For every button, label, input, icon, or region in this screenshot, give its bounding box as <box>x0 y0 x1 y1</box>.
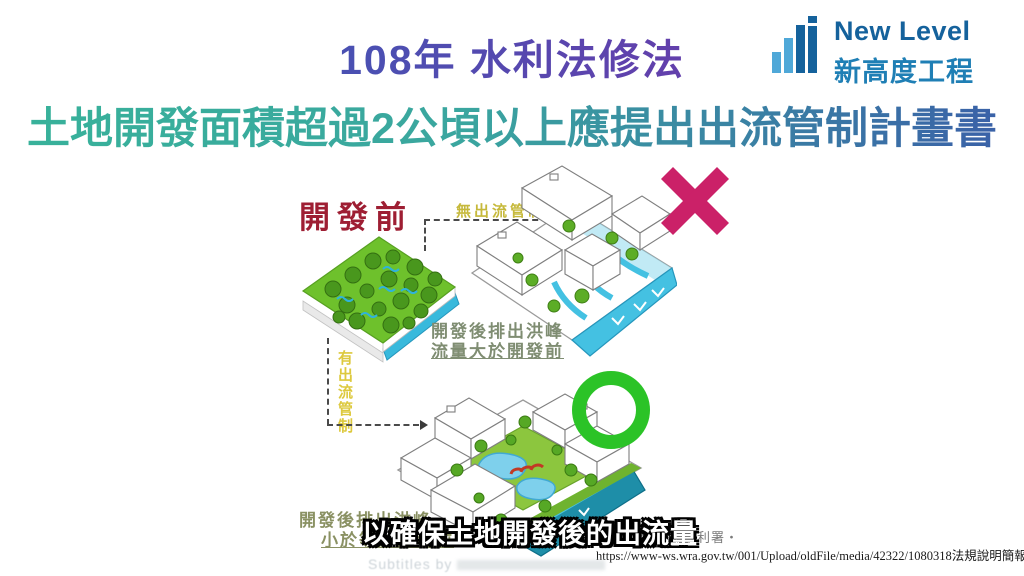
with-control-dashed-line <box>327 338 329 425</box>
flood-result-text: 開發後排出洪峰 流量大於開發前 <box>431 322 564 362</box>
circle-mark <box>568 366 654 452</box>
slide: 108年 水利法修法 New Level 新高度工程 土地開發面積超過2公頃以上… <box>0 0 1024 576</box>
watermark-illegible-tail <box>457 560 605 570</box>
headline: 土地開發面積超過2公頃以上應提出出流管制計畫書 <box>0 94 1024 156</box>
flood-result-line2: 流量大於開發前 <box>431 342 564 362</box>
company-logo: New Level 新高度工程 <box>770 12 996 86</box>
logo-name-en: New Level <box>834 16 971 47</box>
flood-result-line1: 開發後排出洪峰 <box>431 322 564 342</box>
with-control-label: 有出流管制 <box>334 350 355 435</box>
no-control-dashed-drop <box>424 219 426 251</box>
x-mark <box>652 158 738 244</box>
building-bars-icon <box>772 16 824 74</box>
subtitle-watermark: Subtitles by <box>368 556 605 572</box>
watermark-text: Subtitles by <box>368 556 452 572</box>
video-subtitle: 以確保土地開發後的出流量 <box>362 512 698 551</box>
logo-name-zh: 新高度工程 <box>834 50 974 89</box>
